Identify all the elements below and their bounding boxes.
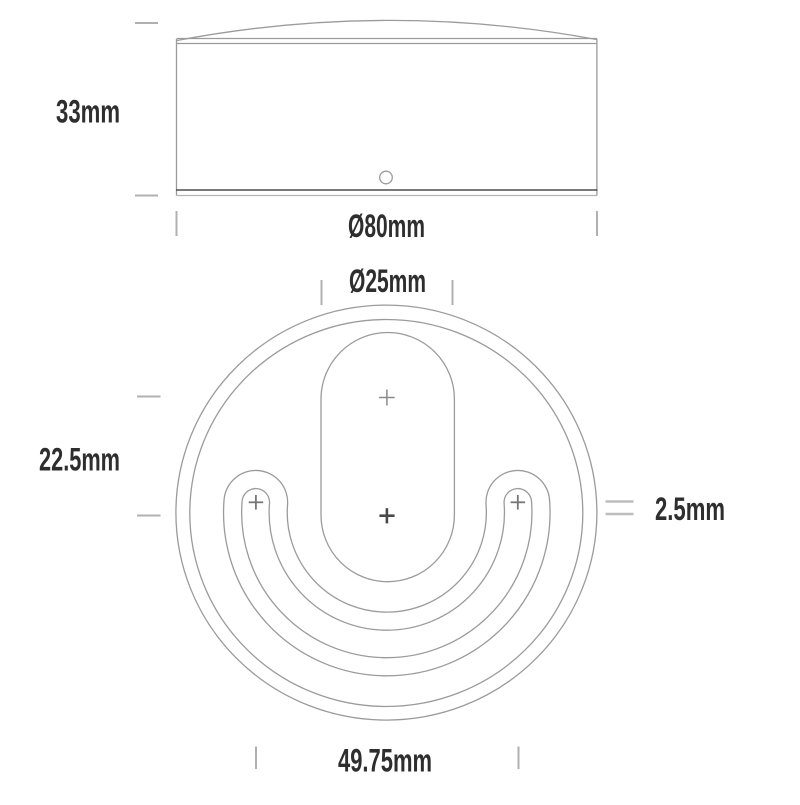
svg-text:49.75mm: 49.75mm xyxy=(338,743,432,779)
svg-text:2.5mm: 2.5mm xyxy=(655,491,725,527)
svg-text:Ø25mm: Ø25mm xyxy=(349,263,426,299)
svg-text:33mm: 33mm xyxy=(56,94,120,130)
svg-text:Ø80mm: Ø80mm xyxy=(348,208,425,244)
svg-text:22.5mm: 22.5mm xyxy=(39,442,120,478)
